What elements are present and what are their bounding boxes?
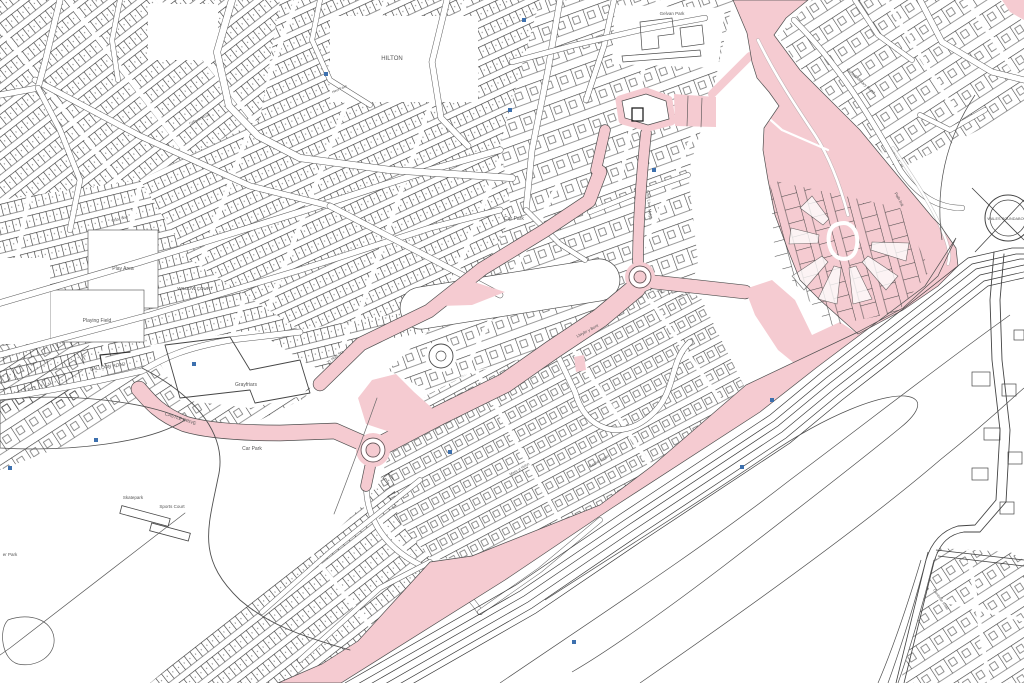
svg-text:Play Area: Play Area (112, 266, 134, 272)
svg-text:Car Park: Car Park (504, 216, 524, 222)
svg-text:HILTON: HILTON (381, 56, 402, 62)
svg-text:Grayfriars: Grayfriars (235, 382, 257, 388)
svg-text:WALES ROUNDABOUT: WALES ROUNDABOUT (987, 217, 1024, 221)
svg-text:Car Park: Car Park (242, 446, 262, 452)
svg-text:Gelvan Park: Gelvan Park (660, 11, 686, 16)
svg-text:WILLOW COURT: WILLOW COURT (177, 286, 213, 291)
svg-text:Playing Field: Playing Field (83, 318, 112, 324)
svg-text:Skatepark: Skatepark (123, 495, 144, 500)
svg-text:Sports Court: Sports Court (159, 504, 185, 509)
svg-text:er Park: er Park (3, 552, 18, 557)
